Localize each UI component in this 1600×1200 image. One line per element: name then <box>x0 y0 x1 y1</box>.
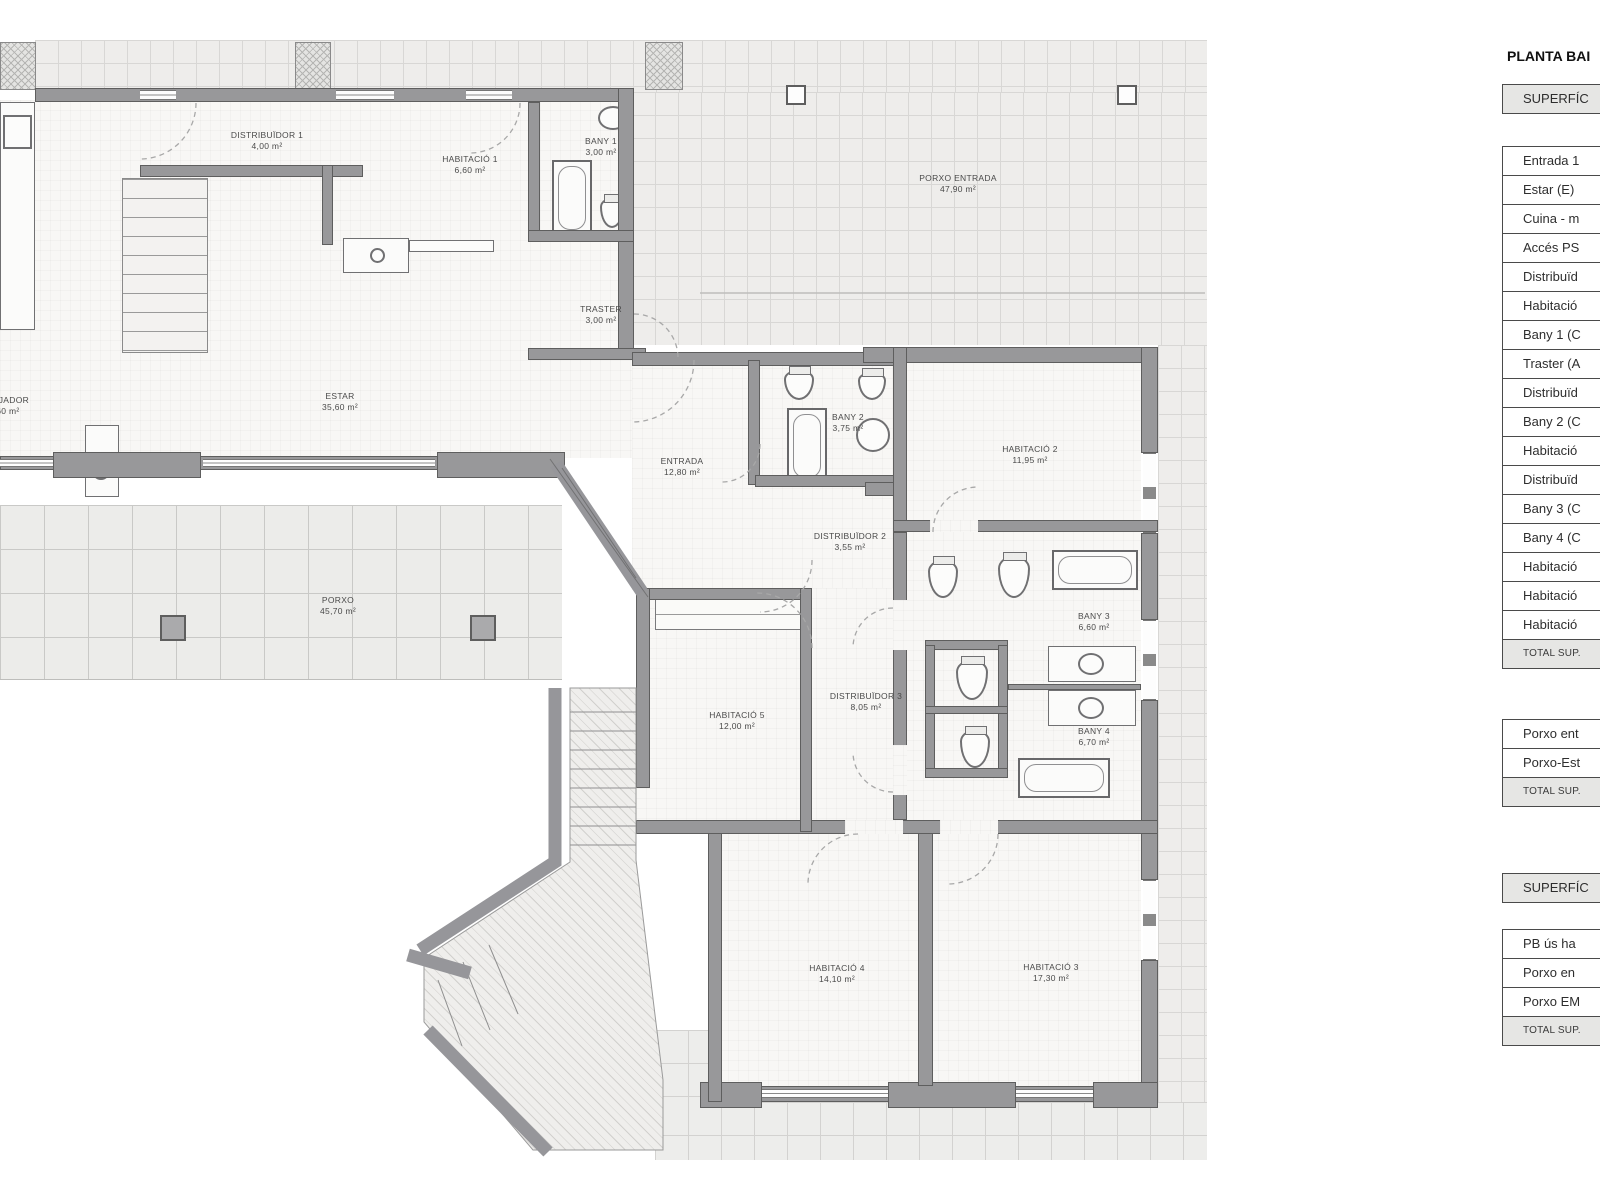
wall <box>636 588 650 788</box>
bath3-sink <box>1078 653 1104 675</box>
table-row: Porxo en <box>1502 958 1600 988</box>
table-row: Cuina - m <box>1502 204 1600 234</box>
porch-post <box>1117 85 1137 105</box>
kitchen-worktop <box>409 240 494 252</box>
wall <box>1141 700 1158 880</box>
table-row: Porxo EM <box>1502 987 1600 1017</box>
surfaces-table-2: Porxo entPorxo-EstTOTAL SUP. <box>1502 720 1600 807</box>
table-row: PB ús ha <box>1502 929 1600 959</box>
bath3-tub <box>1052 550 1138 590</box>
table-row: Habitació <box>1502 291 1600 321</box>
wall <box>35 88 632 102</box>
table-row: Estar (E) <box>1502 175 1600 205</box>
room-label-habitacio4: HABITACIÓ 414,10 m² <box>809 963 865 985</box>
window <box>1143 880 1156 960</box>
surfaces-header-1: SUPERFÍC <box>1502 84 1600 114</box>
table-total-row: TOTAL SUP. <box>1502 639 1600 669</box>
kitchen-sink-left <box>3 115 32 149</box>
table-row: Porxo ent <box>1502 719 1600 749</box>
wall <box>1141 960 1158 1102</box>
door-gap <box>893 745 907 795</box>
wall <box>528 348 646 360</box>
island-sink-drain <box>370 248 385 263</box>
terrace-right-strip <box>1158 345 1207 1160</box>
table-row: Bany 3 (C <box>1502 494 1600 524</box>
wall <box>863 347 1158 363</box>
window <box>336 90 394 100</box>
wall-pier <box>888 1082 1016 1108</box>
surfaces-table-1: Entrada 1Estar (E)Cuina - mAccés PSDistr… <box>1502 147 1600 669</box>
wall <box>925 706 1008 714</box>
room-label-entrada: ENTRADA12,80 m² <box>661 456 704 478</box>
pillar-hatched <box>295 42 331 90</box>
door-gap <box>940 820 998 834</box>
room-label-estar: ESTAR35,60 m² <box>322 391 358 413</box>
table-row: Habitació <box>1502 552 1600 582</box>
table-row: Entrada 1 <box>1502 146 1600 176</box>
floor-plan-page: DISTRIBUÏDOR 14,00 m² HABITACIÓ 16,60 m²… <box>0 0 1600 1200</box>
bath2-tub <box>787 408 827 484</box>
porch-pillar <box>160 615 186 641</box>
window <box>140 90 176 100</box>
bath4-tub <box>1018 758 1110 798</box>
wardrobe <box>655 596 803 630</box>
table-row: Bany 1 (C <box>1502 320 1600 350</box>
door-gap <box>893 600 907 650</box>
wall <box>918 830 933 1086</box>
room-label-traster: TRASTER3,00 m² <box>580 304 622 326</box>
window <box>0 459 53 467</box>
room-label-habitacio1: HABITACIÓ 16,60 m² <box>442 154 498 176</box>
window <box>203 459 435 467</box>
wall <box>1141 533 1158 620</box>
table-row: Bany 4 (C <box>1502 523 1600 553</box>
room-label-distribuidor1: DISTRIBUÏDOR 14,00 m² <box>231 130 303 152</box>
table-row: Distribuïd <box>1502 465 1600 495</box>
table-row: Traster (A <box>1502 349 1600 379</box>
wall-pier <box>53 452 201 478</box>
table-total-row: TOTAL SUP. <box>1502 1016 1600 1046</box>
terrace-porch-left <box>0 505 562 680</box>
bath4-sink <box>1078 697 1104 719</box>
wall <box>925 768 1008 778</box>
room-label-habitacio5: HABITACIÓ 512,00 m² <box>709 710 765 732</box>
room-label-menjador: MENJADOR2,60 m² <box>0 395 29 417</box>
table-row: Habitació <box>1502 581 1600 611</box>
room-label-bany4: BANY 46,70 m² <box>1078 726 1110 748</box>
window <box>1143 620 1156 700</box>
room-label-habitacio2: HABITACIÓ 211,95 m² <box>1002 444 1058 466</box>
porch-pillar <box>470 615 496 641</box>
room-label-distribuidor3: DISTRIBUÏDOR 38,05 m² <box>830 691 902 713</box>
table-total-row: TOTAL SUP. <box>1502 777 1600 807</box>
room-label-bany3: BANY 36,60 m² <box>1078 611 1110 633</box>
terrace-bottom-strip <box>655 1102 1207 1160</box>
door-gap <box>930 520 978 532</box>
room-label-bany2: BANY 23,75 m² <box>832 412 864 434</box>
pillar-hatched <box>645 42 683 90</box>
table-row: Distribuïd <box>1502 378 1600 408</box>
wall <box>528 230 634 242</box>
table-row: Distribuïd <box>1502 262 1600 292</box>
staircase <box>122 178 208 353</box>
table-row: Porxo-Est <box>1502 748 1600 778</box>
wall <box>800 588 812 832</box>
wall <box>925 640 1008 650</box>
wall <box>1141 347 1158 453</box>
surfaces-header-2: SUPERFÍC <box>1502 873 1600 903</box>
table-row: Habitació <box>1502 436 1600 466</box>
room-label-habitacio3: HABITACIÓ 317,30 m² <box>1023 962 1079 984</box>
terrace-top-strip <box>35 40 1207 92</box>
page-title: PLANTA BAI <box>1507 48 1590 64</box>
wall <box>322 165 333 245</box>
wall <box>648 588 812 600</box>
window <box>1016 1089 1093 1098</box>
room-label-distribuidor2: DISTRIBUÏDOR 23,55 m² <box>814 531 886 553</box>
bath1-tub <box>552 160 592 236</box>
room-label-bany1: BANY 13,00 m² <box>585 136 617 158</box>
wall <box>1008 684 1141 690</box>
wall <box>893 347 907 532</box>
window <box>762 1089 888 1098</box>
table-row: Habitació <box>1502 610 1600 640</box>
pillar-hatched <box>0 42 36 90</box>
table-row: Bany 2 (C <box>1502 407 1600 437</box>
room-label-porxo-entrada: PORXO ENTRADA47,90 m² <box>919 173 997 195</box>
surfaces-table-3: PB ús haPorxo enPorxo EMTOTAL SUP. <box>1502 930 1600 1046</box>
wall <box>708 830 722 1102</box>
room-label-porxo: PORXO45,70 m² <box>320 595 356 617</box>
door-gap <box>845 820 903 834</box>
table-row: Accés PS <box>1502 233 1600 263</box>
wall-pier <box>1093 1082 1158 1108</box>
window <box>466 90 512 100</box>
wall <box>748 360 760 485</box>
terrace-porch-entrance <box>632 92 1207 345</box>
wall <box>528 102 540 242</box>
porch-post <box>786 85 806 105</box>
wall-pier <box>437 452 565 478</box>
